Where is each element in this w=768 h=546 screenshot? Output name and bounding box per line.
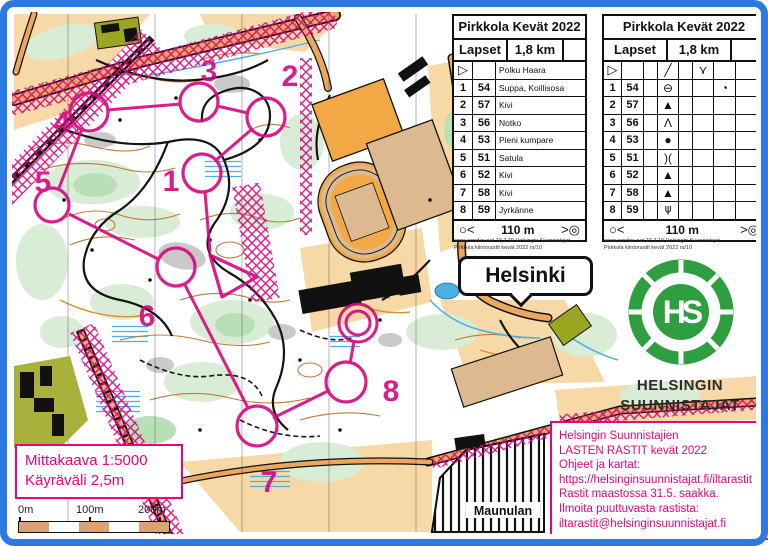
info-line: Rastit maastossa 31.5. saakka. — [559, 487, 764, 502]
empty-cell — [714, 97, 736, 115]
empty-cell — [736, 167, 764, 185]
row-number: 5 — [604, 150, 622, 168]
row-description: Pieni kumpare — [496, 132, 585, 150]
row-code: 57 — [473, 97, 496, 115]
row-number: 1 — [604, 80, 622, 98]
info-email: iltarastit@helsinginsuunnistajat.fi — [559, 517, 764, 532]
row-number: 3 — [454, 115, 473, 133]
map-scale-text: Mittakaava 1:5000 — [25, 451, 177, 471]
club-name-line2: SUUNNISTAJAT — [592, 396, 768, 416]
empty-cell — [644, 62, 658, 80]
scale-tick — [19, 517, 21, 522]
sheet-title: Pirkkola Kevät 2022 — [454, 16, 585, 40]
city-callout-label: Helsinki — [485, 264, 566, 288]
empty-cell — [736, 62, 764, 80]
control-number-6: 6 — [139, 300, 156, 333]
contour-interval-text: Käyräväli 2,5m — [25, 471, 177, 491]
empty-cell — [693, 150, 714, 168]
class-name: Lapset — [604, 40, 668, 60]
empty-cell — [644, 202, 658, 220]
finish-row: ○< 110 m >◎ — [454, 220, 585, 240]
empty-cell — [736, 150, 764, 168]
empty-cell — [644, 115, 658, 133]
control-number-4: 4 — [54, 106, 71, 139]
empty-cell — [693, 185, 714, 203]
empty-cell — [736, 185, 764, 203]
empty-cell — [679, 150, 693, 168]
scale-bar-labels: 0m 100m 200m — [18, 504, 170, 517]
row-number: 6 — [454, 167, 473, 185]
empty-cell — [714, 202, 736, 220]
row-code: 52 — [622, 167, 644, 185]
empty-cell — [714, 132, 736, 150]
row-code: 56 — [473, 115, 496, 133]
empty-cell — [714, 185, 736, 203]
row-code: 56 — [622, 115, 644, 133]
empty-cell — [644, 150, 658, 168]
empty-cell — [679, 132, 693, 150]
scale-segment — [19, 522, 49, 532]
taped-route-start-icon: ○< — [609, 221, 624, 239]
map-attribution-right: www.condes.net 10.2.19 Helsingin Suunnis… — [604, 238, 720, 252]
row-code: 54 — [622, 80, 644, 98]
start-symbol-cell: ▷ — [454, 62, 473, 80]
empty-cell — [693, 80, 714, 98]
blank-cell — [564, 40, 585, 60]
row-number: 4 — [604, 132, 622, 150]
course-length: 1,8 km — [508, 40, 564, 60]
row-description: Kivi — [496, 97, 585, 115]
northeast-part-icon: ◔ — [714, 80, 736, 98]
knoll-icon: ● — [658, 132, 679, 150]
sheet-class-row: Lapset 1,8 km — [454, 40, 585, 62]
saddle-icon: )( — [658, 150, 679, 168]
empty-cell — [644, 185, 658, 203]
row-description: Kivi — [496, 167, 585, 185]
row-number: 8 — [604, 202, 622, 220]
club-logo: HS — [618, 252, 744, 377]
orienteering-map-sheet: { "map": { "place_label": "Maunulan", "c… — [0, 0, 768, 546]
scale-bar: 0m 100m 200m — [18, 504, 170, 533]
row-number: 1 — [454, 80, 473, 98]
empty-cell — [644, 167, 658, 185]
empty-cell — [736, 132, 764, 150]
row-code: 58 — [622, 185, 644, 203]
cliff-glyph: ⋔ — [663, 203, 673, 217]
control-sheet-text: Pirkkola Kevät 2022 Lapset 1,8 km ▷ Polk… — [452, 14, 587, 242]
finish-distance: 110 m — [474, 223, 561, 237]
empty-cell — [736, 97, 764, 115]
finish-icon: >◎ — [561, 221, 580, 239]
finish-icon: >◎ — [740, 221, 759, 239]
path-icon: ╱ — [658, 62, 679, 80]
control-rows: ▷ Polku Haara 1 54 Suppa, Koillisosa 2 5… — [454, 62, 585, 220]
club-monogram: HS — [663, 294, 703, 330]
boulder-icon: ▲ — [658, 97, 679, 115]
scale-segment — [49, 522, 79, 532]
taped-route-start-icon: ○< — [459, 221, 474, 239]
row-code: 54 — [473, 80, 496, 98]
row-code: 52 — [473, 167, 496, 185]
cliff-icon: ⋔ — [658, 202, 679, 220]
attribution-line: www.condes.net 10.2.19 Helsingin Suunnis… — [604, 238, 720, 245]
empty-cell — [679, 185, 693, 203]
row-code: 59 — [622, 202, 644, 220]
row-number: 2 — [604, 97, 622, 115]
scale-label-200: 200m — [138, 504, 166, 516]
scale-bar-graphic — [18, 521, 170, 533]
row-code: 59 — [473, 202, 496, 220]
info-url: https://helsinginsuunnistajat.fi/iltaras… — [559, 473, 764, 488]
row-description: Jyrkänne — [496, 202, 585, 220]
empty-cell — [622, 62, 644, 80]
info-line: Ohjeet ja kartat: — [559, 458, 764, 473]
row-number: 7 — [604, 185, 622, 203]
row-number: 5 — [454, 150, 473, 168]
empty-cell — [693, 97, 714, 115]
info-line: Helsingin Suunnistajien — [559, 429, 764, 444]
control-rows: ▷ ╱ ⋎ 1 54 ⊖ ◔ 2 57 ▲ 3 56 Λ 4 53 ● — [604, 62, 764, 220]
empty-cell — [693, 167, 714, 185]
junction-icon: ⋎ — [693, 62, 714, 80]
row-code: 53 — [622, 132, 644, 150]
control-number-7: 7 — [261, 466, 278, 499]
empty-cell — [736, 115, 764, 133]
event-info-box: Helsingin Suunnistajien LASTEN RASTIT ke… — [550, 421, 768, 540]
empty-cell — [644, 132, 658, 150]
empty-cell — [736, 80, 764, 98]
start-symbol-cell: ▷ — [604, 62, 622, 80]
empty-cell — [679, 115, 693, 133]
info-line: Ilmoita puuttuvasta rastista: — [559, 502, 764, 517]
row-code: 53 — [473, 132, 496, 150]
empty-cell — [736, 202, 764, 220]
row-number: 2 — [454, 97, 473, 115]
scale-label-100: 100m — [76, 504, 104, 516]
empty-cell — [714, 62, 736, 80]
scale-segment — [109, 522, 139, 532]
empty-cell — [679, 80, 693, 98]
empty-cell — [714, 115, 736, 133]
finish-distance: 110 m — [624, 223, 740, 237]
empty-cell — [679, 167, 693, 185]
map-attribution-left: www.condes.net 10.2.19 Helsingin Suunnis… — [454, 238, 570, 252]
club-name: HELSINGIN SUUNNISTAJAT — [592, 376, 768, 416]
row-number: 4 — [454, 132, 473, 150]
empty-cell — [693, 132, 714, 150]
sheet-title: Pirkkola Kevät 2022 — [604, 16, 764, 40]
reentrant-icon: Λ — [658, 115, 679, 133]
row-number: 6 — [604, 167, 622, 185]
control-number-1: 1 — [163, 165, 180, 198]
empty-cell — [693, 202, 714, 220]
control-sheet-symbols: Pirkkola Kevät 2022 Lapset 1,8 km ▷ ╱ ⋎ … — [602, 14, 766, 242]
row-code: 57 — [622, 97, 644, 115]
boulder-icon: ▲ — [658, 185, 679, 203]
row-code: 51 — [622, 150, 644, 168]
pond — [435, 283, 459, 299]
attribution-line: Pirkkola kiintorastit kevät 2022 rs/10 — [604, 245, 720, 252]
attribution-line: www.condes.net 10.2.19 Helsingin Suunnis… — [454, 238, 570, 245]
control-number-8: 8 — [383, 375, 400, 408]
row-number: 7 — [454, 185, 473, 203]
row-code: 58 — [473, 185, 496, 203]
start-description: Polku Haara — [496, 62, 585, 80]
empty-cell — [714, 167, 736, 185]
blank-cell — [732, 40, 764, 60]
empty-cell — [644, 97, 658, 115]
row-number: 8 — [454, 202, 473, 220]
row-description: Kivi — [496, 185, 585, 203]
attribution-line: Pirkkola kiintorastit kevät 2022 rs/10 — [454, 245, 570, 252]
row-description: Notko — [496, 115, 585, 133]
district-label: Maunulan — [474, 504, 532, 518]
control-number-5: 5 — [35, 166, 52, 199]
control-number-3: 3 — [201, 55, 218, 88]
scale-tick — [89, 517, 91, 522]
row-code: 51 — [473, 150, 496, 168]
sheet-class-row: Lapset 1,8 km — [604, 40, 764, 62]
scale-segment — [79, 522, 109, 532]
boulder-icon: ▲ — [658, 167, 679, 185]
empty-cell — [679, 97, 693, 115]
scale-label-0: 0m — [18, 504, 33, 516]
empty-cell — [679, 202, 693, 220]
finish-row: ○< 110 m >◎ — [604, 220, 764, 240]
empty-cell — [693, 115, 714, 133]
club-name-line1: HELSINGIN — [592, 376, 768, 396]
class-name: Lapset — [454, 40, 508, 60]
row-description: Suppa, Koillisosa — [496, 80, 585, 98]
scale-box: Mittakaava 1:5000 Käyräväli 2,5m — [15, 444, 183, 499]
city-callout: Helsinki — [458, 256, 593, 296]
control-number-2: 2 — [282, 60, 299, 93]
depression-icon: ⊖ — [658, 80, 679, 98]
row-description: Satula — [496, 150, 585, 168]
empty-cell — [644, 80, 658, 98]
row-number: 3 — [604, 115, 622, 133]
course-length: 1,8 km — [668, 40, 732, 60]
empty-cell — [714, 150, 736, 168]
empty-cell — [679, 62, 693, 80]
hs-logo-icon: HS — [618, 252, 744, 372]
scale-tick — [159, 517, 161, 522]
start-code-cell — [473, 62, 496, 80]
scale-segment — [139, 522, 169, 532]
info-line: LASTEN RASTIT kevät 2022 — [559, 444, 764, 459]
